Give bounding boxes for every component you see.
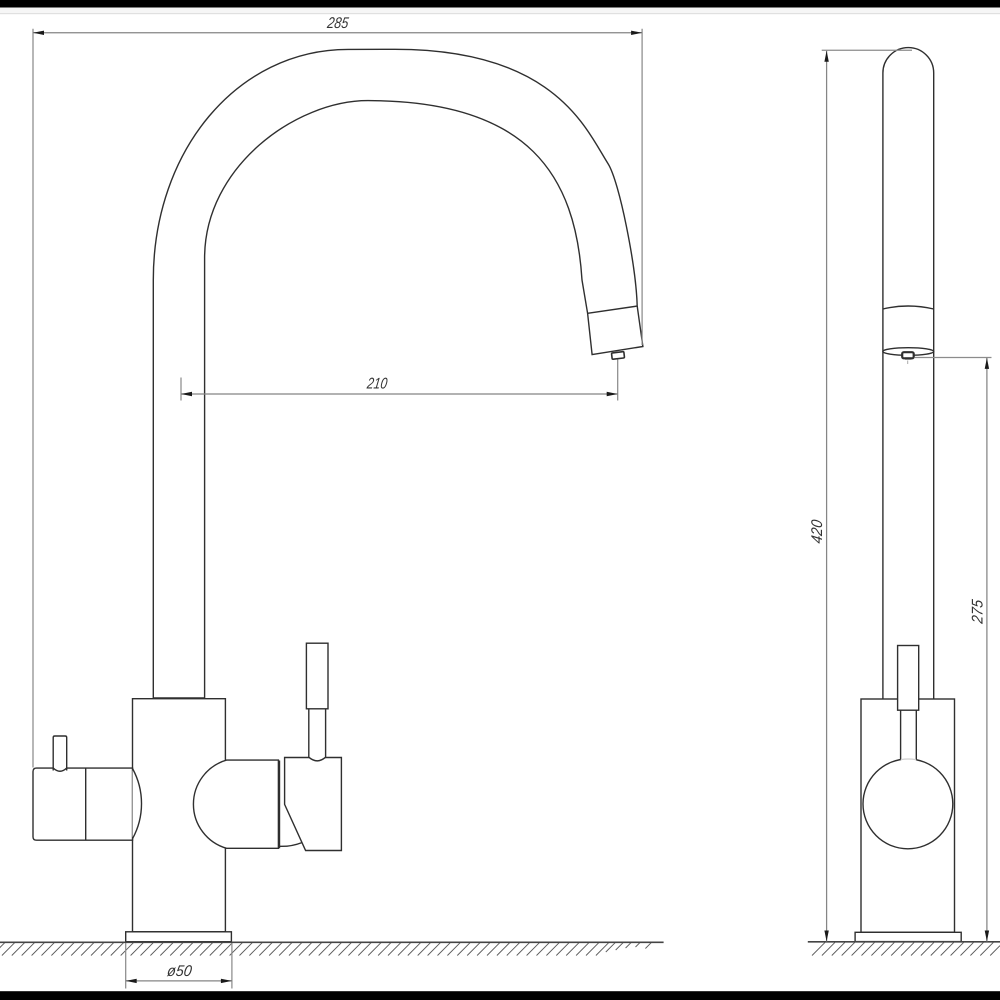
svg-text:420: 420	[809, 518, 826, 544]
svg-text:ø50: ø50	[166, 963, 193, 980]
svg-text:285: 285	[325, 15, 349, 32]
svg-text:210: 210	[365, 376, 388, 393]
svg-text:275: 275	[970, 598, 987, 625]
